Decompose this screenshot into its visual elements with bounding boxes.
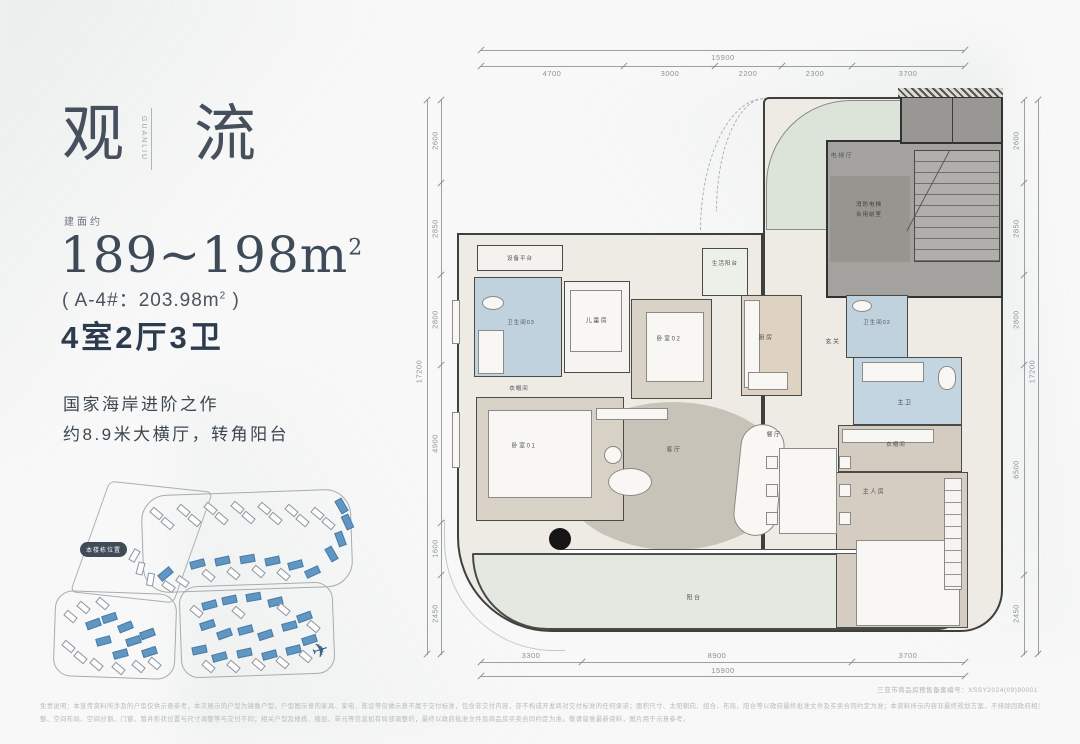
brand-divider-line xyxy=(151,108,152,170)
siteplan-building xyxy=(245,592,261,602)
dim-label-left-3: 2800 xyxy=(431,298,440,342)
siteplan-building xyxy=(231,606,245,620)
dim-label-left-4: 4900 xyxy=(431,422,440,466)
area-detail: ( A-4#：203.98m2 ) xyxy=(62,285,240,312)
siteplan-building xyxy=(241,511,255,525)
siteplan-building xyxy=(268,512,282,526)
toilet xyxy=(938,366,956,390)
siteplan-building xyxy=(95,597,109,611)
siteplan-building xyxy=(275,656,289,670)
siteplan-building xyxy=(141,646,158,658)
dim-label-right-3: 2800 xyxy=(1012,298,1021,342)
room-label-equipment-platform: 设备平台 xyxy=(507,254,533,262)
chair xyxy=(839,512,851,525)
siteplan-building xyxy=(264,556,280,567)
site-plan: 本楼栋位置 ✈ xyxy=(50,480,355,698)
room-label-bath-03: 卫生间03 xyxy=(507,318,535,326)
siteplan-building xyxy=(61,640,75,654)
siteplan-building xyxy=(95,635,112,647)
room-label-bedroom-01: 卧室01 xyxy=(512,441,537,450)
kitchen-island xyxy=(748,372,788,390)
siteplan-building xyxy=(175,575,190,588)
chair xyxy=(839,456,851,469)
area-range-value: 189~198m xyxy=(60,226,348,284)
siteplan-building xyxy=(324,546,338,563)
dim-label-bottom-3: 3700 xyxy=(888,651,928,660)
siteplan-building xyxy=(281,620,298,632)
siteplan-building xyxy=(73,651,87,665)
siteplan-building xyxy=(63,610,77,624)
room-label-bedroom-02: 卧室02 xyxy=(657,334,682,343)
siteplan-building xyxy=(101,612,118,624)
dim-label-left-total: 17200 xyxy=(415,350,424,394)
room-label-kitchen: 厨房 xyxy=(758,333,773,342)
dim-line-right-total xyxy=(1038,100,1039,655)
siteplan-building xyxy=(214,512,228,526)
dimension-tick xyxy=(1034,650,1041,657)
siteplan-building xyxy=(135,561,145,575)
siteplan-building xyxy=(201,569,215,583)
dim-label-top-2: 3000 xyxy=(650,69,690,78)
siteplan-building xyxy=(117,620,134,633)
room-label-balcony: 阳台 xyxy=(686,593,701,602)
room-label-living-room: 客厅 xyxy=(666,445,681,454)
tv-console xyxy=(596,408,668,420)
siteplan-building xyxy=(341,514,355,531)
room-label-kids: 儿童房 xyxy=(586,316,609,325)
siteplan-building xyxy=(237,624,254,636)
area-detail-post: ) xyxy=(226,290,240,311)
siteplan-building xyxy=(306,620,320,634)
siteplan-building xyxy=(295,514,309,528)
dim-label-left-1: 2600 xyxy=(431,119,440,163)
wardrobe xyxy=(944,478,962,590)
room-label-elevator-hall: 电梯厅 xyxy=(831,151,854,160)
dim-label-bottom-total: 15900 xyxy=(481,666,965,675)
siteplan-building xyxy=(236,648,252,659)
siteplan-building xyxy=(147,657,161,671)
siteplan-building xyxy=(221,595,237,606)
siteplan-building xyxy=(85,618,102,631)
siteplan-building xyxy=(298,650,312,664)
room-label-master-bedroom: 主人房 xyxy=(863,487,886,496)
disclaimer-line-2: 整、空间布局、空间分割、门窗、管井形状位置与尺寸调整等与交付不同；相关户型及楼栋… xyxy=(40,714,1040,723)
dim-label-right-total: 17200 xyxy=(1028,350,1037,394)
siteplan-building xyxy=(334,498,348,515)
room-label-master-bath: 主卫 xyxy=(897,398,912,407)
room-label-core-line2: 合用前室 xyxy=(856,210,882,218)
siteplan-building xyxy=(76,601,90,615)
chair xyxy=(766,484,778,497)
dim-label-left-5: 1600 xyxy=(431,527,440,571)
chair xyxy=(839,484,851,497)
siteplan-building xyxy=(139,628,156,641)
site-plan-buildings xyxy=(50,480,355,698)
dim-line-top-segments xyxy=(481,66,965,67)
dim-label-top-1: 4700 xyxy=(532,69,572,78)
room-label-core-line1: 消防电梯 xyxy=(856,200,882,208)
stool xyxy=(604,446,622,464)
siteplan-building xyxy=(146,572,155,586)
room-label-closet-2: 衣帽间 xyxy=(509,384,529,392)
building-location-badge: 本楼栋位置 xyxy=(80,542,127,557)
siteplan-building xyxy=(191,645,207,656)
area-detail-pre: ( A-4#：203.98m xyxy=(62,290,220,311)
room-label-dining-room: 餐厅 xyxy=(766,430,781,439)
siteplan-building xyxy=(334,531,347,548)
siteplan-building xyxy=(189,558,206,570)
room-label-service-balcony: 生活阳台 xyxy=(712,259,738,267)
siteplan-building xyxy=(201,599,218,611)
area-range-sup: 2 xyxy=(348,235,363,260)
siteplan-building xyxy=(160,517,174,531)
siteplan-building xyxy=(112,648,129,660)
dim-label-top-total: 15900 xyxy=(481,53,965,62)
dim-label-right-2: 2850 xyxy=(1012,207,1021,251)
siteplan-building xyxy=(287,559,304,571)
dimension-tick xyxy=(961,658,968,665)
dim-label-left-6: 2450 xyxy=(431,592,440,636)
dim-line-bottom-segments xyxy=(481,662,965,663)
bedroom02-bed xyxy=(646,312,704,382)
chair xyxy=(766,456,778,469)
dim-line-left-total xyxy=(427,100,428,655)
brand-char-left: 观 xyxy=(62,104,124,166)
dim-label-bottom-2: 8900 xyxy=(697,651,737,660)
record-number: 三亚市商品房预售备案编号：XSSY2024(09)90001 xyxy=(877,684,1038,694)
chair xyxy=(766,512,778,525)
siteplan-building xyxy=(226,660,240,674)
siteplan-building xyxy=(111,662,125,676)
room-service-balcony xyxy=(702,248,748,296)
dim-label-left-2: 2850 xyxy=(431,207,440,251)
coffee-table xyxy=(608,468,652,496)
siteplan-building xyxy=(304,565,321,579)
sink-cabinet xyxy=(478,330,504,374)
dim-label-right-1: 2600 xyxy=(1012,119,1021,163)
marketing-line-1: 国家海岸进阶之作 xyxy=(63,390,219,415)
dim-label-top-3: 2200 xyxy=(728,69,768,78)
disclaimer-line-1: 免责说明：本宣传资料所涉及的户型仅供示意参考，本次展示的户型为镜像户型，户型图示… xyxy=(40,701,1040,710)
room-label-foyer: 玄关 xyxy=(825,337,840,346)
siteplan-building xyxy=(211,651,228,663)
marketing-line-2: 约8.9米大横厅，转角阳台 xyxy=(63,420,289,445)
room-label-bath-02: 卫生间02 xyxy=(863,318,891,326)
dim-label-top-4: 2300 xyxy=(795,69,835,78)
siteplan-building xyxy=(321,517,335,531)
siteplan-building xyxy=(161,580,176,593)
core-divider xyxy=(952,96,953,144)
window xyxy=(452,300,460,344)
dining-table xyxy=(779,448,837,534)
siteplan-building xyxy=(251,565,265,579)
brand-vertical-text: GUANLIU xyxy=(140,116,147,161)
brand-char-right: 流 xyxy=(194,104,256,166)
brand-divider: GUANLIU xyxy=(124,104,168,174)
toilet xyxy=(482,296,504,310)
siteplan-building xyxy=(125,635,142,647)
dim-label-right-4: 6500 xyxy=(1012,448,1021,492)
siteplan-building xyxy=(187,514,201,528)
dim-label-bottom-1: 3300 xyxy=(511,651,551,660)
room-label-closet: 衣帽间 xyxy=(886,440,906,448)
window xyxy=(452,412,460,468)
dim-line-bottom-total xyxy=(481,676,965,677)
layout-spec: 4室2厅3卫 xyxy=(61,312,224,357)
siteplan-building xyxy=(226,567,240,581)
column-marker xyxy=(549,528,571,550)
toilet xyxy=(852,300,872,312)
brand-title: 观 GUANLIU 流 xyxy=(62,104,256,174)
dim-label-top-5: 3700 xyxy=(888,69,928,78)
siteplan-building xyxy=(216,628,233,641)
siteplan-building xyxy=(131,660,145,674)
flyer-page: 观 GUANLIU 流 建面约 189~198m2 ( A-4#：203.98m… xyxy=(0,0,1080,744)
area-range: 189~198m2 xyxy=(60,226,363,284)
zone-fire-elevator xyxy=(830,176,910,262)
hatch-strip xyxy=(898,88,1003,97)
siteplan-building xyxy=(239,554,255,564)
siteplan-building xyxy=(214,556,230,567)
vanity xyxy=(862,362,924,382)
siteplan-building xyxy=(276,603,290,617)
dim-line-top-total xyxy=(481,50,965,51)
siteplan-building xyxy=(199,619,216,631)
dimension-tick xyxy=(1020,650,1027,657)
siteplan-building xyxy=(257,629,274,641)
siteplan-building xyxy=(89,658,103,672)
dim-label-right-5: 2450 xyxy=(1012,592,1021,636)
bedroom01-bed xyxy=(488,410,592,498)
